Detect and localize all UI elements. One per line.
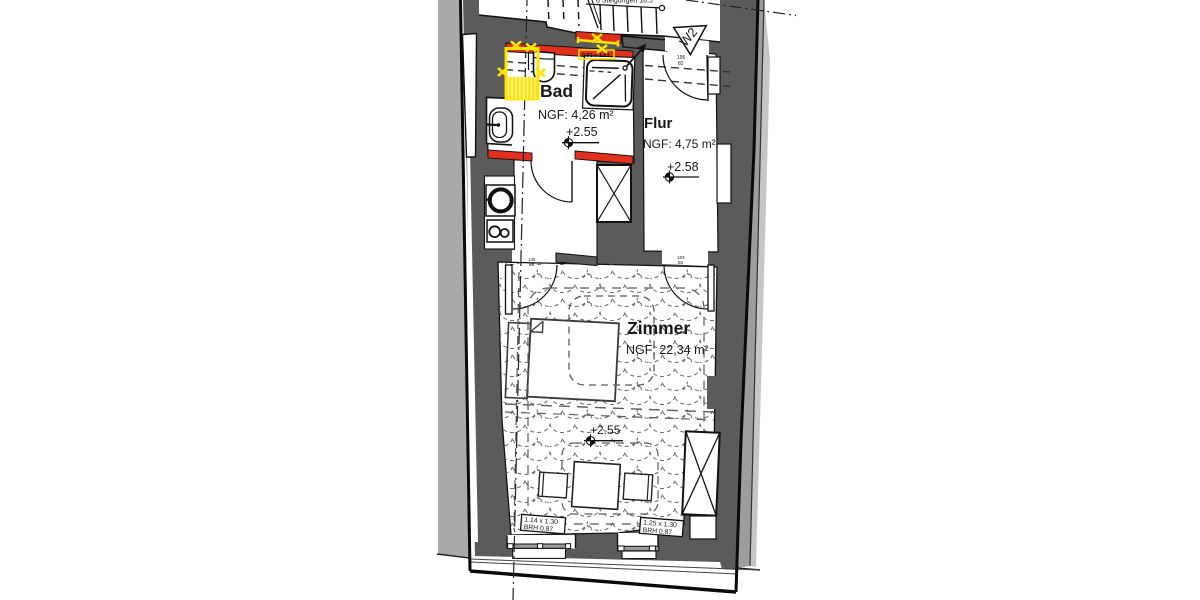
svg-text:Bad: Bad	[540, 81, 573, 101]
svg-text:82: 82	[678, 61, 684, 67]
svg-text:86: 86	[529, 262, 535, 267]
svg-text:Zimmer: Zimmer	[627, 318, 690, 338]
svg-text:0.51 x 1.03: 0.51 x 1.03	[582, 53, 610, 59]
svg-text:+2.55: +2.55	[590, 423, 621, 437]
svg-text:8 Steigungen 18,5: 8 Steigungen 18,5	[596, 0, 653, 5]
svg-text:Flur: Flur	[644, 115, 672, 132]
svg-text:NGF: 4,75 m²: NGF: 4,75 m²	[643, 137, 716, 151]
svg-text:NGF: 22,34 m²: NGF: 22,34 m²	[626, 343, 709, 357]
svg-text:NGF: 4,26 m²: NGF: 4,26 m²	[538, 108, 614, 122]
svg-text:+2.58: +2.58	[667, 160, 699, 174]
svg-text:86: 86	[678, 260, 684, 265]
svg-text:+2.55: +2.55	[566, 125, 598, 139]
